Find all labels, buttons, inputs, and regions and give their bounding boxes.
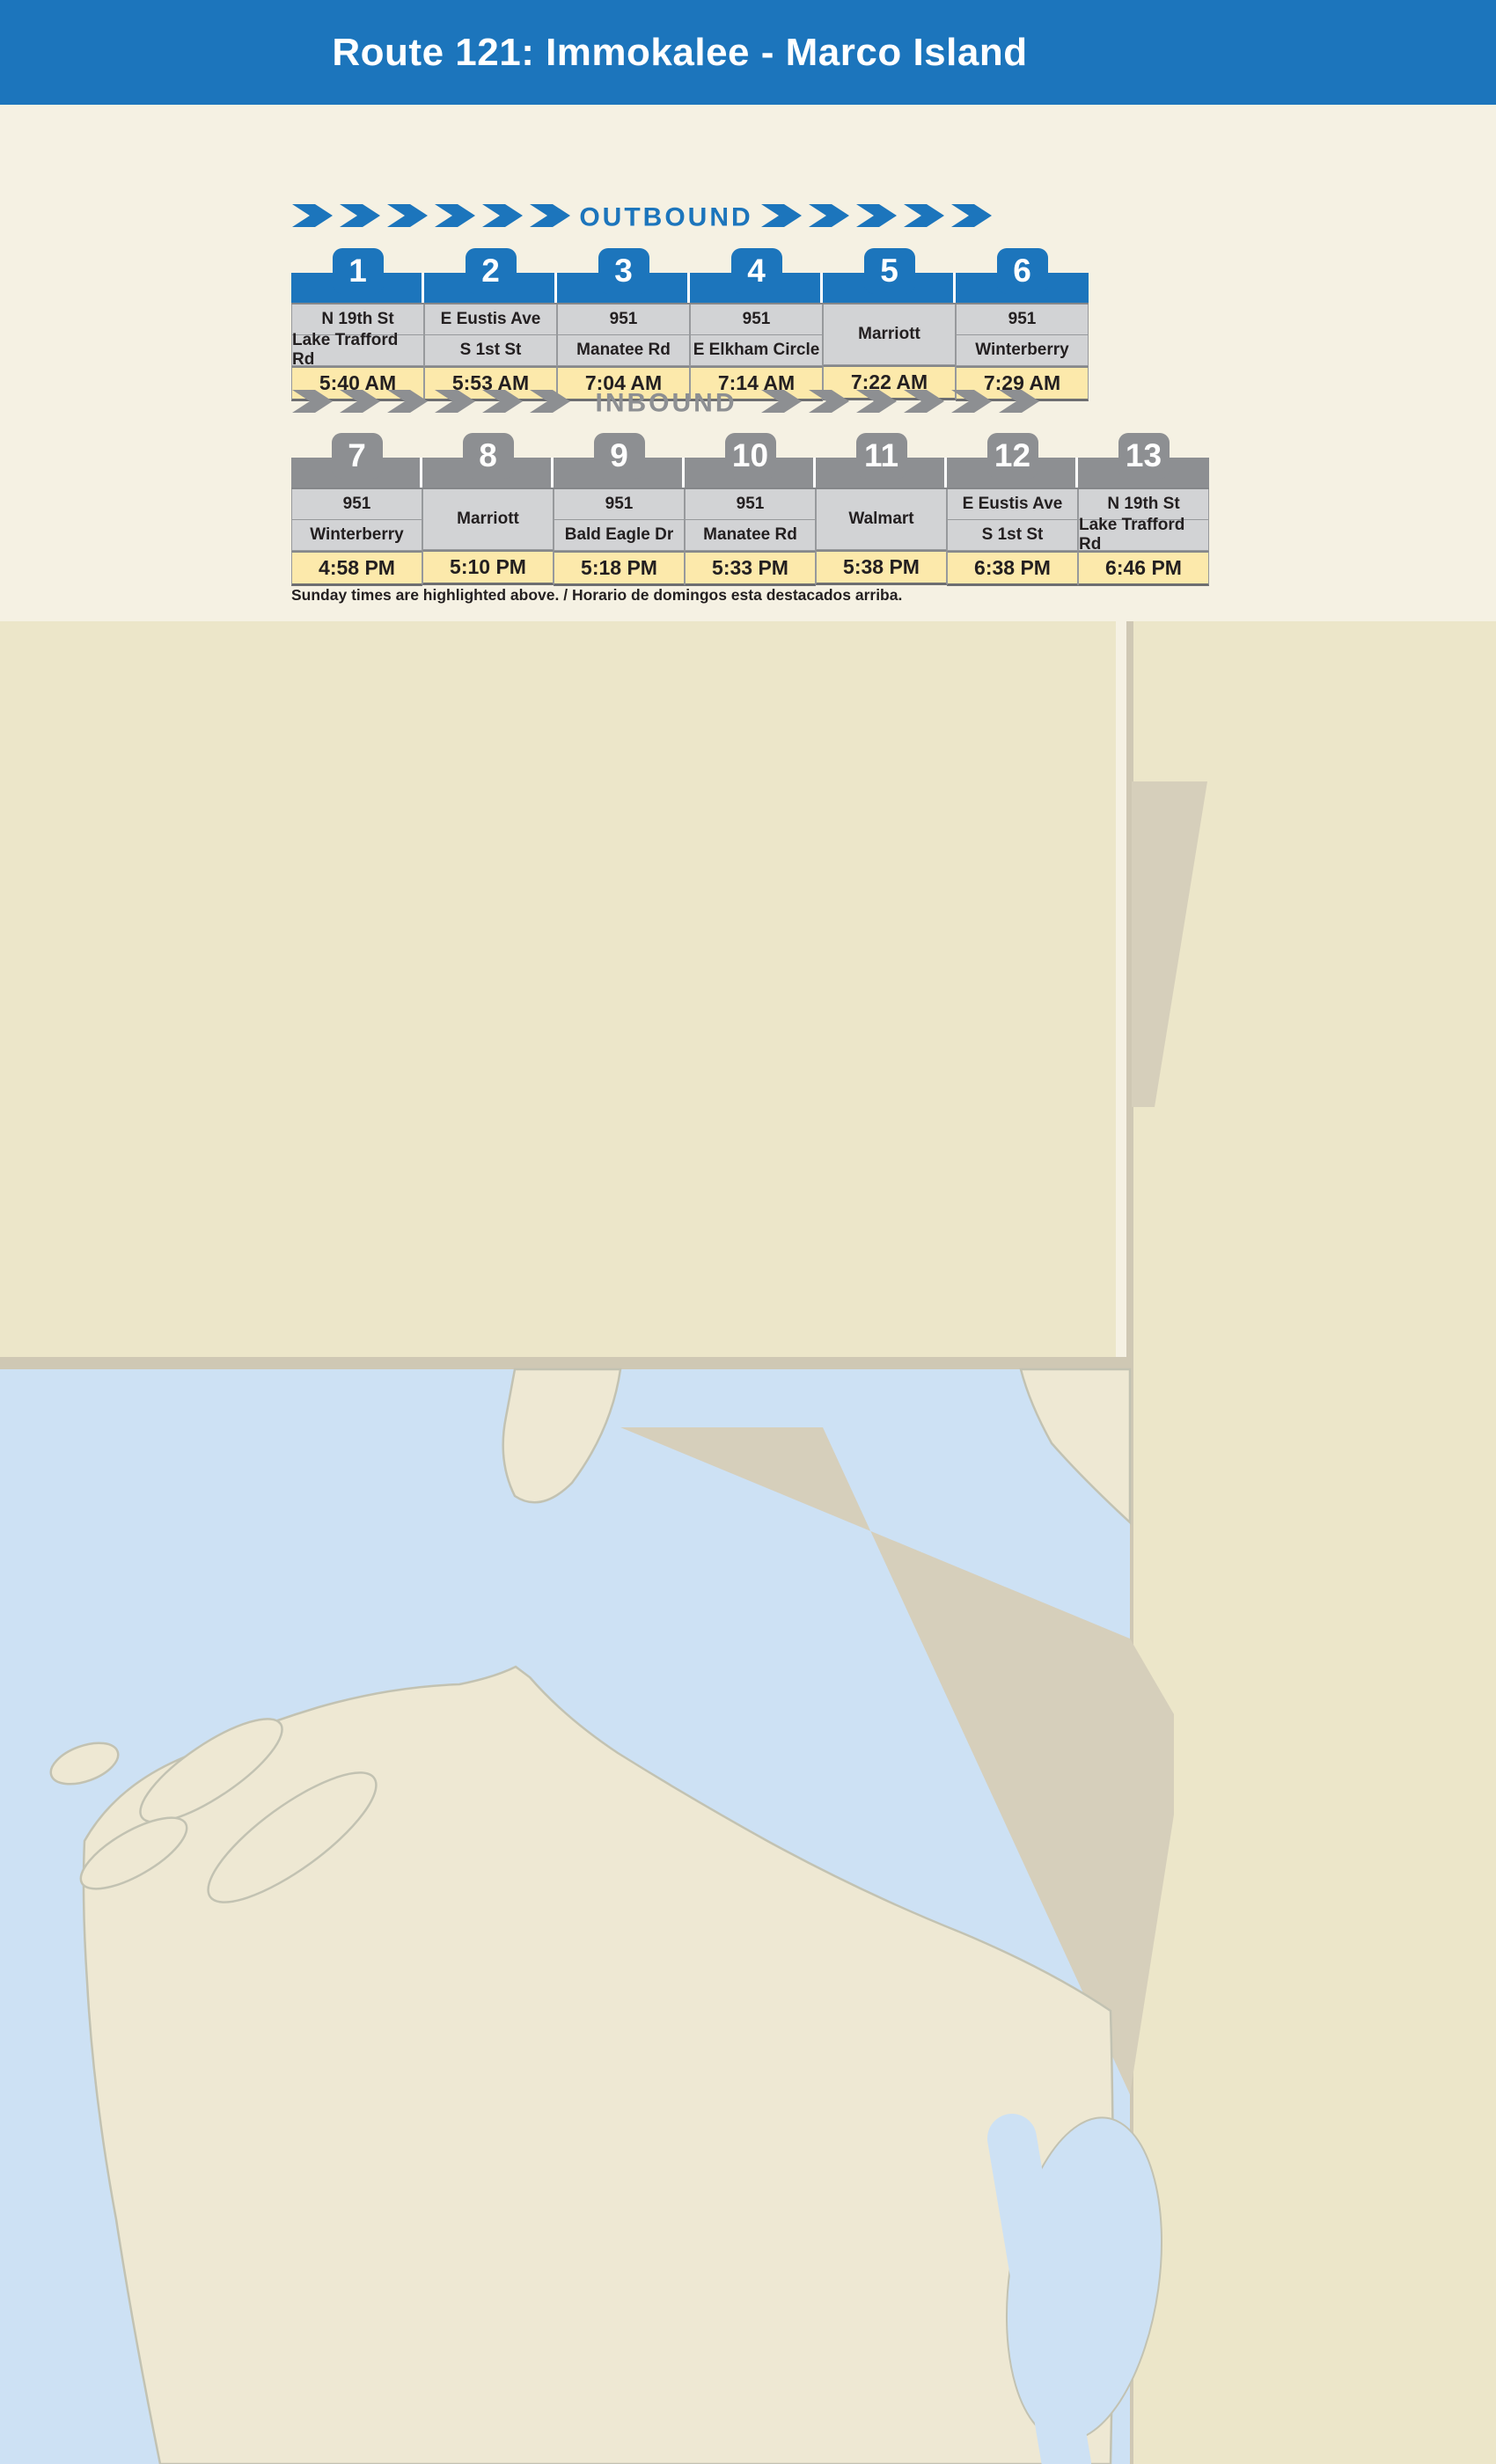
stop-cross-street-cell: Winterberry	[291, 520, 422, 551]
timepoint-number-tab: 3	[598, 248, 649, 294]
timepoint-column-8: 8 Marriott 5:10 PM	[422, 433, 554, 586]
timepoint-column-13: 13 N 19th St Lake Trafford Rd 6:46 PM	[1078, 433, 1209, 586]
marco-island-land	[84, 1667, 1113, 2464]
stop-cross-street-cell: Manatee Rd	[557, 335, 690, 366]
stop-street-cell: 951	[291, 489, 422, 520]
stop-street-cell: 951	[557, 304, 690, 335]
timepoint-column-2: 2 E Eustis Ave S 1st St 5:53 AM	[424, 248, 557, 401]
timepoint-number-tab: 5	[864, 248, 915, 294]
timepoint-number-tab: 2	[466, 248, 517, 294]
timepoint-column-5: 5 Marriott 7:22 AM	[823, 248, 956, 401]
timepoint-number-tab: 11	[856, 433, 907, 479]
stop-cross-street-cell: Winterberry	[956, 335, 1089, 366]
outbound-banner-label: OUTBOUND	[579, 203, 752, 230]
departure-time-cell: 5:38 PM	[816, 550, 947, 585]
timepoint-column-10: 10 951 Manatee Rd 5:33 PM	[685, 433, 816, 586]
corridor-callout-beam	[1132, 781, 1207, 1107]
departure-time-cell: 5:33 PM	[685, 551, 816, 586]
inbound-banner: INBOUND	[292, 389, 1084, 420]
inbound-banner-label: INBOUND	[596, 389, 737, 415]
corridor-panel-edge	[1126, 621, 1133, 2464]
timepoint-number-tab: 6	[997, 248, 1048, 294]
departure-time-cell: 5:10 PM	[422, 550, 554, 585]
timepoint-column-4: 4 951 E Elkham Circle 7:14 AM	[690, 248, 823, 401]
timepoint-number-tab: 13	[1118, 433, 1170, 479]
stop-street-cell: 951	[685, 489, 816, 520]
timepoint-column-11: 11 Walmart 5:38 PM	[816, 433, 947, 586]
stop-cross-street-cell: Manatee Rd	[685, 520, 816, 551]
stop-name-cell: Marriott	[422, 489, 554, 550]
schedule-note: Sunday times are highlighted above. / Ho…	[291, 586, 902, 605]
route-map-page: { "header": {"title": "Route 121: Immoka…	[0, 0, 1496, 2464]
timepoint-number-tab: 10	[725, 433, 776, 479]
outbound-schedule-table: 1 N 19th St Lake Trafford Rd 5:40 AM2 E …	[291, 248, 1089, 401]
timepoint-number-tab: 1	[333, 248, 384, 294]
stop-cross-street-cell: S 1st St	[424, 335, 557, 366]
stop-name-cell: Walmart	[816, 489, 947, 550]
panel-divider	[0, 1357, 1130, 1371]
timepoint-number-tab: 7	[332, 433, 383, 479]
stop-cross-street-cell: Bald Eagle Dr	[554, 520, 685, 551]
timepoint-number-tab: 9	[594, 433, 645, 479]
immokalee-map-panel	[0, 621, 1116, 1357]
corridor-map-panel	[1133, 621, 1496, 2464]
departure-time-cell: 6:38 PM	[947, 551, 1078, 586]
timepoint-number-tab: 8	[463, 433, 514, 479]
outbound-banner: OUTBOUND	[292, 203, 1084, 234]
marco-callout-beam	[620, 1427, 1130, 2094]
stop-name-cell: Marriott	[823, 304, 956, 365]
header-bar: Route 121: Immokalee - Marco Island	[0, 0, 1496, 105]
stop-street-cell: 951	[956, 304, 1089, 335]
departure-time-cell: 4:58 PM	[291, 551, 422, 586]
stop-cross-street-cell: S 1st St	[947, 520, 1078, 551]
stop-street-cell: E Eustis Ave	[424, 304, 557, 335]
timepoint-number-tab: 12	[987, 433, 1038, 479]
departure-time-cell: 5:18 PM	[554, 551, 685, 586]
timepoint-column-6: 6 951 Winterberry 7:29 AM	[956, 248, 1089, 401]
timepoint-column-9: 9 951 Bald Eagle Dr 5:18 PM	[554, 433, 685, 586]
stop-street-cell: 951	[554, 489, 685, 520]
gulf-water	[0, 1369, 1130, 2464]
timepoint-column-1: 1 N 19th St Lake Trafford Rd 5:40 AM	[291, 248, 424, 401]
timepoint-column-12: 12 E Eustis Ave S 1st St 6:38 PM	[947, 433, 1078, 586]
page-title: Route 121: Immokalee - Marco Island	[0, 0, 1360, 105]
timepoint-column-3: 3 951 Manatee Rd 7:04 AM	[557, 248, 690, 401]
stop-cross-street-cell: E Elkham Circle	[690, 335, 823, 366]
inbound-schedule-table: 7 951 Winterberry 4:58 PM8 Marriott 5:10…	[291, 433, 1209, 586]
stop-street-cell: 951	[690, 304, 823, 335]
stop-street-cell: E Eustis Ave	[947, 489, 1078, 520]
stop-cross-street-cell: Lake Trafford Rd	[291, 335, 424, 366]
timepoint-column-7: 7 951 Winterberry 4:58 PM	[291, 433, 422, 586]
stop-cross-street-cell: Lake Trafford Rd	[1078, 520, 1209, 551]
departure-time-cell: 6:46 PM	[1078, 551, 1209, 586]
timepoint-number-tab: 4	[731, 248, 782, 294]
